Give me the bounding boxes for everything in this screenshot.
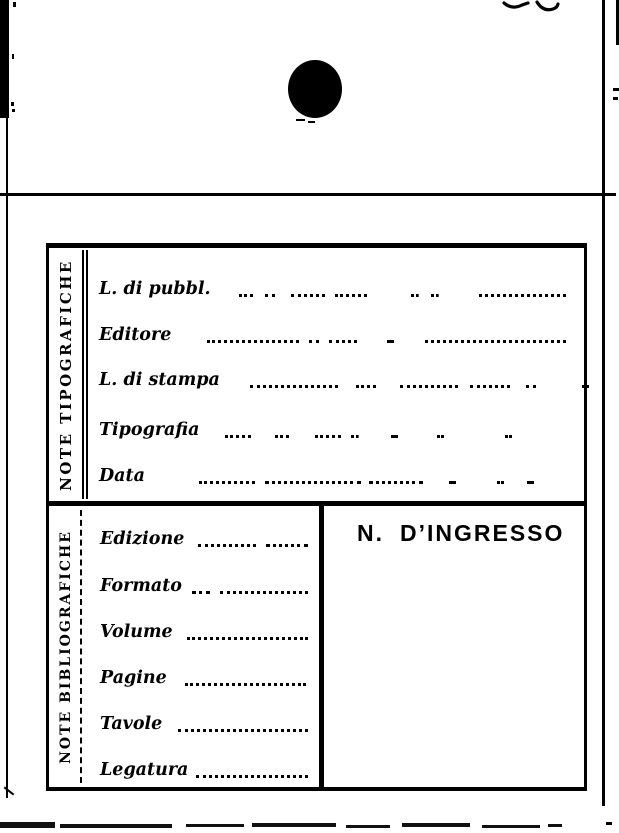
field-label: Edizione	[100, 527, 184, 551]
dotted-leader	[266, 544, 308, 547]
scan-speck	[613, 88, 619, 91]
field-row-tipografia: Tipografia	[99, 418, 566, 442]
card-right-edge-line	[602, 0, 605, 806]
field-row-data: Data	[99, 464, 566, 488]
dotted-leader	[199, 481, 255, 484]
dotted-leader	[250, 385, 338, 388]
dotted-leader	[315, 435, 341, 438]
field-row-tavole: Tavole	[100, 712, 310, 736]
scan-speck	[12, 109, 15, 112]
dotted-leader	[275, 435, 289, 438]
punch-hole-mark	[288, 60, 342, 118]
scan-speck	[613, 97, 618, 100]
dotted-leader	[351, 435, 359, 438]
field-label: Volume	[100, 620, 173, 644]
scan-bottom-band	[548, 824, 562, 827]
field-row-edizione: Edizione	[100, 527, 310, 551]
dotted-leader	[239, 294, 253, 297]
scan-bottom-band	[186, 824, 244, 827]
library-card-scan: NOTE TIPOGRAFICHE L. di pubbl. Editore L…	[0, 0, 619, 833]
dotted-leader	[225, 435, 251, 438]
catalog-form-box: NOTE TIPOGRAFICHE L. di pubbl. Editore L…	[46, 243, 587, 791]
field-row-l-di-pubbl: L. di pubbl.	[99, 277, 566, 301]
field-row-l-di-stampa: L. di stampa	[99, 368, 566, 392]
field-label: L. di stampa	[99, 368, 220, 392]
dotted-leader	[220, 591, 308, 594]
field-label: Tavole	[100, 712, 162, 736]
dotted-leader	[391, 435, 397, 438]
strip-separator-double-line	[82, 250, 84, 499]
dotted-leader	[265, 481, 361, 484]
scan-speck	[12, 54, 14, 59]
section-tipografiche-strip: NOTE TIPOGRAFICHE	[49, 248, 82, 501]
dotted-leader	[335, 294, 367, 297]
dotted-leader	[329, 340, 357, 343]
ingresso-label: D’INGRESSO	[400, 520, 564, 547]
scan-speck	[13, 2, 16, 7]
field-label: Pagine	[100, 666, 167, 690]
dotted-leader	[526, 385, 536, 388]
dotted-leader	[411, 294, 419, 297]
dotted-leader	[470, 385, 510, 388]
dotted-leader	[527, 481, 533, 484]
dotted-leader	[479, 294, 566, 297]
ingresso-divider-rule	[319, 506, 324, 787]
scan-speck	[606, 822, 612, 825]
dotted-leader	[178, 729, 308, 732]
dotted-leader	[265, 294, 275, 297]
ingresso-heading: N. D’INGRESSO	[357, 520, 564, 547]
dotted-leader	[198, 544, 256, 547]
dotted-leader	[291, 294, 325, 297]
dotted-leader	[369, 481, 423, 484]
field-label: Formato	[100, 574, 182, 598]
dotted-leader	[497, 481, 501, 484]
field-label: Editore	[99, 323, 171, 347]
dotted-leader	[309, 340, 319, 343]
dotted-leader	[192, 591, 210, 594]
field-label: Legatura	[100, 758, 188, 782]
field-row-editore: Editore	[99, 323, 566, 347]
dotted-leader	[425, 340, 566, 343]
scan-bottom-band	[0, 822, 55, 828]
dotted-leader	[431, 294, 439, 297]
scan-bottom-band	[252, 823, 336, 827]
dotted-leader	[185, 683, 306, 686]
ingresso-prefix: N.	[357, 520, 384, 547]
dotted-leader	[582, 385, 588, 388]
strip-separator-double-line	[86, 250, 88, 499]
scan-left-black-bar	[0, 0, 9, 118]
scan-speck	[11, 102, 14, 106]
dotted-leader	[356, 385, 376, 388]
strip-separator-dashed-line	[80, 510, 82, 783]
dotted-leader	[387, 340, 393, 343]
section-divider-rule	[49, 501, 584, 506]
field-row-volume: Volume	[100, 620, 310, 644]
scan-bottom-band	[402, 823, 470, 827]
field-label: L. di pubbl.	[99, 277, 211, 301]
dotted-leader	[187, 637, 308, 640]
section-label-bibliografiche: NOTE BIBLIOGRAFICHE	[58, 530, 74, 764]
field-label: Tipografia	[99, 418, 199, 442]
field-row-legatura: Legatura	[100, 758, 310, 782]
dotted-leader	[196, 775, 308, 778]
scan-speck	[308, 121, 315, 123]
scan-bottom-band	[60, 824, 172, 828]
pen-scribble-mark	[495, 0, 570, 18]
dotted-leader	[207, 340, 299, 343]
field-label: Data	[99, 464, 145, 488]
section-bibliografiche-strip: NOTE BIBLIOGRAFICHE	[49, 506, 82, 787]
field-row-formato: Formato	[100, 574, 310, 598]
dotted-leader	[505, 435, 509, 438]
dotted-leader	[400, 385, 458, 388]
dotted-leader	[449, 481, 455, 484]
dotted-leader	[437, 435, 441, 438]
section-label-tipografiche: NOTE TIPOGRAFICHE	[57, 259, 75, 491]
scan-bottom-band	[482, 825, 540, 828]
card-top-rule	[0, 193, 616, 196]
card-left-edge-line	[6, 110, 8, 798]
scan-speck	[296, 119, 305, 121]
scan-bottom-band	[346, 825, 390, 828]
field-row-pagine: Pagine	[100, 666, 310, 690]
